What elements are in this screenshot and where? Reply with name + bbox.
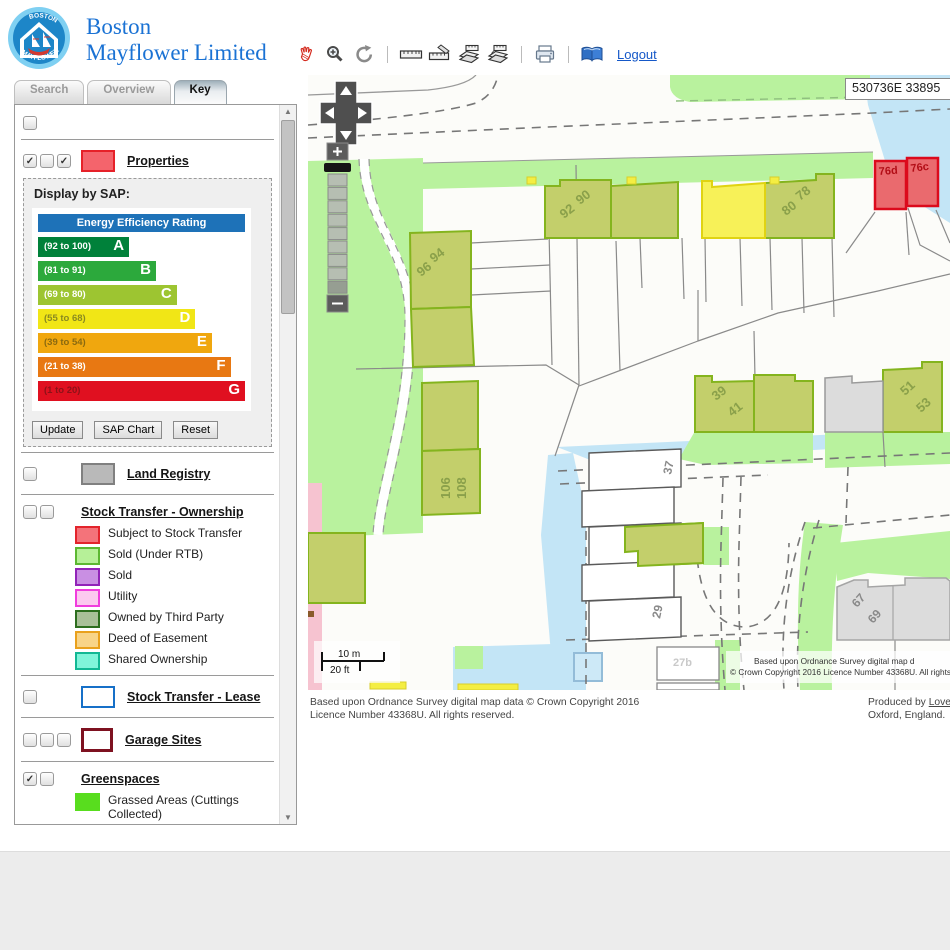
legend-swatch <box>75 547 100 565</box>
epc-band-B: (81 to 91)B <box>38 261 156 281</box>
brand-line1: Boston <box>86 14 267 40</box>
land-registry-row: Land Registry <box>15 458 280 489</box>
epc-band-range: (39 to 54) <box>44 337 86 348</box>
divider <box>21 452 274 453</box>
sap-buttons: UpdateSAP ChartReset <box>32 420 263 439</box>
panel-scrollbar[interactable]: ▲ ▼ <box>279 105 296 824</box>
os-attribution: Based upon Ordnance Survey digital map d… <box>310 697 646 723</box>
map-attribution: Based upon Ordnance Survey digital map d… <box>726 651 950 683</box>
checkbox-checked[interactable]: ✓ <box>23 772 37 786</box>
legend-item: Sold <box>75 568 280 586</box>
legend-item: Deed of Easement <box>75 631 280 649</box>
top-layer-row <box>15 111 280 134</box>
epc-band-letter: F <box>216 357 225 374</box>
gray-building-51[interactable] <box>825 376 883 432</box>
legend-label: Shared Ownership <box>108 652 280 667</box>
brand-title: Boston Mayflower Limited <box>86 14 267 66</box>
legend-swatch <box>75 793 100 811</box>
legend-label: Grassed Areas (Cuttings Collected) <box>108 793 280 822</box>
garage-sites-swatch <box>81 728 113 752</box>
legend-label: Subject to Stock Transfer <box>108 526 280 541</box>
stock-ownership-link[interactable]: Stock Transfer - Ownership <box>81 505 244 519</box>
logo-icon: BOSTON MAYFLOWER <box>7 6 71 70</box>
sap-filter-box: Display by SAP: Energy Efficiency Rating… <box>23 178 272 447</box>
svg-text:20 ft: 20 ft <box>330 665 350 676</box>
legend-item: Subject to Stock Transfer <box>75 526 280 544</box>
sidebar-tabs: Search Overview Key <box>14 80 227 104</box>
producer-attribution: Produced by Lovell Johns Lim Oxford, Eng… <box>868 697 950 723</box>
tab-key[interactable]: Key <box>174 80 227 104</box>
epc-band-letter: G <box>228 381 240 398</box>
legend-swatch <box>75 652 100 670</box>
legend-item: Grassed Areas (Cuttings Collected) <box>75 793 280 822</box>
svg-text:76d: 76d <box>878 165 898 178</box>
reset-button[interactable]: Reset <box>173 421 218 439</box>
scrollbar-thumb[interactable] <box>281 120 295 314</box>
svg-text:76c: 76c <box>910 161 930 175</box>
map-canvas[interactable]: 90 92 94 96 106 108 78 80 76d 76c 39 41 … <box>308 75 950 690</box>
svg-text:108: 108 <box>454 477 469 499</box>
legend-swatch <box>75 568 100 586</box>
legend-swatch <box>75 631 100 649</box>
print-icon[interactable] <box>533 42 557 66</box>
legend-swatch <box>75 589 100 607</box>
divider <box>21 675 274 676</box>
toolbar-separator <box>521 46 522 63</box>
sap-chart-button[interactable]: SAP Chart <box>94 421 162 439</box>
scroll-up-arrow[interactable]: ▲ <box>280 107 296 116</box>
properties-link[interactable]: Properties <box>127 154 189 168</box>
legend-label: Owned by Third Party <box>108 610 280 625</box>
greenspaces-link[interactable]: Greenspaces <box>81 772 160 786</box>
svg-text:Based upon Ordnance Survey dig: Based upon Ordnance Survey digital map d <box>754 656 915 666</box>
checkbox-unchecked[interactable] <box>40 772 54 786</box>
epc-band-E: (39 to 54)E <box>38 333 212 353</box>
application-window: BOSTON MAYFLOWER Boston Mayflower Limite… <box>0 0 950 950</box>
epc-chart-header: Energy Efficiency Rating <box>38 214 245 232</box>
legend-swatch <box>75 610 100 628</box>
epc-chart: Energy Efficiency Rating (92 to 100)A(81… <box>32 208 251 411</box>
lovell-johns-link[interactable]: Lovell Johns Lim <box>929 697 950 708</box>
legend-label: Sold (Under RTB) <box>108 547 280 562</box>
divider <box>21 139 274 140</box>
greenspaces-legend: Grassed Areas (Cuttings Collected)Grasse… <box>15 793 280 824</box>
checkbox-unchecked[interactable] <box>40 154 54 168</box>
zoom-slider[interactable] <box>324 143 351 312</box>
divider <box>21 717 274 718</box>
zoom-in-icon[interactable] <box>323 42 347 66</box>
refresh-icon[interactable] <box>352 42 376 66</box>
legend-swatch <box>75 526 100 544</box>
svg-text:106: 106 <box>438 477 453 499</box>
boston-mayflower-logo: BOSTON MAYFLOWER <box>7 6 71 75</box>
brand-line2: Mayflower Limited <box>86 40 267 66</box>
epc-band-letter: C <box>161 285 172 302</box>
map-svg[interactable]: 90 92 94 96 106 108 78 80 76d 76c 39 41 … <box>308 75 950 690</box>
epc-band-range: (69 to 80) <box>44 289 86 300</box>
zoom-slider-track[interactable] <box>328 174 347 293</box>
epc-bands: (92 to 100)A(81 to 91)B(69 to 80)C(55 to… <box>38 237 245 401</box>
produced-by-text: Produced by <box>868 697 929 708</box>
legend-label: Sold <box>108 568 280 583</box>
tab-overview[interactable]: Overview <box>87 80 170 104</box>
sap-title: Display by SAP: <box>34 187 263 201</box>
epc-band-G: (1 to 20)G <box>38 381 245 401</box>
divider <box>21 761 274 762</box>
land-registry-swatch <box>81 463 115 485</box>
coordinate-readout: 530736E 33895 <box>845 78 950 100</box>
legend-label: Deed of Easement <box>108 631 280 646</box>
properties-swatch <box>81 150 115 172</box>
greenspaces-heading-row: ✓ Greenspaces <box>15 767 280 790</box>
epc-band-letter: B <box>140 261 151 278</box>
epc-band-F: (21 to 38)F <box>38 357 231 377</box>
key-panel-content: ✓✓ Properties Display by SAP: Energy Eff… <box>15 105 280 824</box>
divider <box>21 494 274 495</box>
footer-bar <box>0 851 950 950</box>
measure-area-icon[interactable] <box>428 42 452 66</box>
epc-band-range: (55 to 68) <box>44 313 86 324</box>
land-registry-link[interactable]: Land Registry <box>127 467 210 481</box>
map-toolbar: Logout <box>294 42 657 66</box>
stock-lease-swatch <box>81 686 115 708</box>
epc-band-letter: A <box>113 237 124 254</box>
stock-lease-row: Stock Transfer - Lease <box>15 681 280 712</box>
stock-ownership-heading-row: Stock Transfer - Ownership <box>15 500 280 523</box>
yellow-building[interactable] <box>702 181 765 238</box>
pan-hand-icon[interactable] <box>294 42 318 66</box>
properties-row: ✓✓ Properties <box>15 145 280 176</box>
svg-text:© Crown Copyright 2016 Licence: © Crown Copyright 2016 Licence Number 43… <box>730 667 950 677</box>
stock-lease-link[interactable]: Stock Transfer - Lease <box>127 690 260 704</box>
svg-text:10 m: 10 m <box>338 649 360 660</box>
legend-item: Shared Ownership <box>75 652 280 670</box>
checkbox-unchecked[interactable] <box>57 733 71 747</box>
epc-band-range: (21 to 38) <box>44 361 86 372</box>
key-panel: ✓✓ Properties Display by SAP: Energy Eff… <box>14 104 297 825</box>
gray-building-67[interactable] <box>837 578 950 640</box>
brown-marker <box>308 611 314 617</box>
scroll-down-arrow[interactable]: ▼ <box>280 813 296 822</box>
checkbox-unchecked[interactable] <box>23 505 37 519</box>
epc-band-letter: D <box>179 309 190 326</box>
map-layers-2-icon[interactable] <box>486 42 510 66</box>
checkbox-unchecked[interactable] <box>40 733 54 747</box>
svg-text:27b: 27b <box>673 657 692 669</box>
update-button[interactable]: Update <box>32 421 83 439</box>
stock-ownership-legend: Subject to Stock TransferSold (Under RTB… <box>15 526 280 670</box>
legend-label: Utility <box>108 589 280 604</box>
measure-ruler-icon[interactable] <box>399 42 423 66</box>
checkbox-unchecked[interactable] <box>23 116 37 130</box>
garage-sites-row: Garage Sites <box>15 723 280 756</box>
checkbox-unchecked[interactable] <box>23 467 37 481</box>
producer-location: Oxford, England. <box>868 710 950 723</box>
tab-search[interactable]: Search <box>14 80 84 104</box>
legend-item: Owned by Third Party <box>75 610 280 628</box>
checkbox-unchecked[interactable] <box>40 505 54 519</box>
toolbar-separator <box>568 46 569 63</box>
epc-band-A: (92 to 100)A <box>38 237 129 257</box>
garage-sites-link[interactable]: Garage Sites <box>125 733 201 747</box>
checkbox-checked[interactable]: ✓ <box>23 154 37 168</box>
legend-item: Utility <box>75 589 280 607</box>
checkbox-unchecked[interactable] <box>23 690 37 704</box>
legend-item: Sold (Under RTB) <box>75 547 280 565</box>
epc-band-C: (69 to 80)C <box>38 285 177 305</box>
epc-band-range: (81 to 91) <box>44 265 86 276</box>
epc-band-range: (1 to 20) <box>44 385 80 396</box>
logout-link[interactable]: Logout <box>617 47 657 62</box>
zoom-slider-handle[interactable] <box>324 163 351 172</box>
checkbox-unchecked[interactable] <box>23 733 37 747</box>
epc-band-range: (92 to 100) <box>44 241 91 252</box>
epc-band-letter: E <box>197 333 207 350</box>
epc-band-D: (55 to 68)D <box>38 309 195 329</box>
checkbox-checked[interactable]: ✓ <box>57 154 71 168</box>
scale-bar: 10 m 20 ft <box>314 641 400 683</box>
book-icon[interactable] <box>580 42 604 66</box>
map-layers-1-icon[interactable] <box>457 42 481 66</box>
toolbar-separator <box>387 46 388 63</box>
